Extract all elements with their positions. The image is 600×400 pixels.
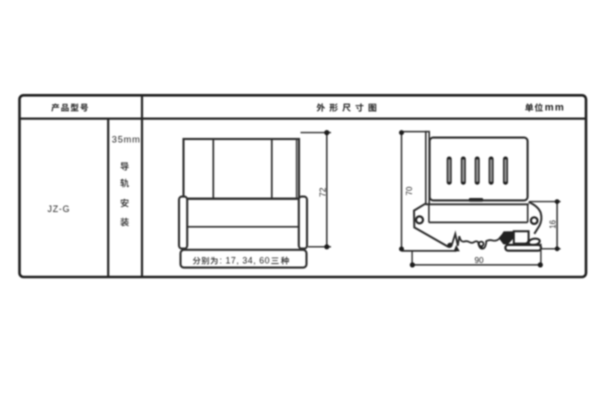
- svg-text:90: 90: [474, 256, 484, 265]
- svg-text:35mm: 35mm: [112, 134, 141, 144]
- svg-text:JZ-G: JZ-G: [48, 204, 71, 214]
- svg-text:70: 70: [405, 186, 414, 195]
- svg-text:: 17, 34, 60: : 17, 34, 60: [220, 256, 271, 266]
- svg-text:16: 16: [549, 220, 558, 229]
- svg-text:72: 72: [318, 187, 328, 197]
- svg-text:mm: mm: [545, 103, 565, 114]
